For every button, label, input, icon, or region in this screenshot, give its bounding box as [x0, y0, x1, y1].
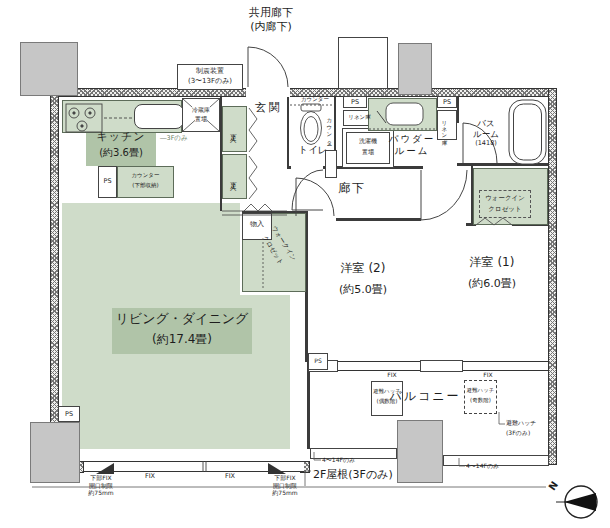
fix-label-living-2: FIX [220, 472, 240, 480]
shoe-cabinet-label-1: 下足入 [229, 112, 237, 148]
entry-door-arc [248, 47, 288, 87]
fix-label-room2: FIX [382, 371, 402, 379]
powder-room-label: パウダールーム [383, 133, 441, 157]
kitchen-name: キッチン [86, 130, 156, 144]
compass-icon [556, 486, 597, 518]
room2-size: (約5.0畳) [323, 283, 403, 297]
fix-label-room1: FIX [478, 371, 498, 379]
floors-note-2: 4〜14Fのみ [466, 462, 510, 470]
linen-label-v: リネン庫 [441, 113, 448, 139]
toilet-label: トイレ [294, 144, 332, 156]
column-top-mid [398, 43, 432, 95]
ps-label-powder: PS [437, 98, 457, 106]
common-corridor-label: 共用廊下(内廊下) [232, 6, 310, 34]
ps-label-kitchen: PS [98, 177, 117, 185]
kitchen-3f-note: ―3Fのみ [160, 134, 202, 142]
bath-room-label: バスルーム (1418) [466, 118, 506, 147]
wall-powder-bath [457, 97, 459, 123]
wic-room1-label: ウォークインクロゼット [479, 193, 531, 215]
living-dining-size: (約17.4畳) [112, 332, 252, 347]
refrigerator-label: 冷蔵庫 置場 [182, 105, 220, 123]
kitchen-sink [134, 104, 184, 129]
seismic-device-label: 制震装置(3〜13Fのみ) [178, 67, 242, 87]
room1-door-arc [421, 170, 467, 220]
toilet-counter-label: カウンター [294, 96, 336, 103]
floors-note-1: 4〜14Fのみ [322, 456, 366, 464]
bathtub-icon [509, 100, 546, 164]
wall-right [548, 88, 557, 465]
hatch-3f-note: 避難ハッチ(3Fのみ) [506, 418, 556, 437]
room1-name: 洋室 (1) [452, 255, 532, 270]
wall-toilet-bottom-a [287, 166, 291, 169]
ps-label-room2: PS [308, 357, 328, 365]
vanity-counter [368, 98, 437, 131]
room2-name: 洋室 (2) [323, 261, 403, 276]
entrance-label: 玄関 [248, 101, 290, 115]
kitchen-size: (約3.6畳) [86, 147, 156, 160]
column-top-left [20, 42, 78, 96]
linen-label-h: リネン庫 [343, 114, 376, 121]
ps-label-left: PS [58, 410, 80, 418]
lower-fix-note-1: 下部FIX開口制限約75mm [78, 474, 124, 497]
living-dining-name: リビング・ダイニング [112, 311, 252, 327]
fix-label-living-1: FIX [140, 472, 160, 480]
entry-opening [246, 88, 290, 97]
room1-size: (約6.0畳) [452, 277, 532, 291]
floor-plan: 共用廊下(内廊下) 制震装置(3〜13Fのみ) キッチン (約3.6畳) ―3F… [0, 0, 610, 528]
roof-2f-label: 2F屋根(3Fのみ) [313, 468, 413, 482]
corridor-label: 廊下 [332, 181, 372, 196]
hatch-odd-label: 避難ハッチ(奇数階) [464, 385, 497, 406]
hatch-even-label: 避難ハッチ(偶数階) [371, 386, 403, 407]
lower-fix-note-2: 下部FIX開口制限約75mm [262, 474, 308, 497]
ps-label-toilet: PS [343, 98, 367, 106]
counter-storage-label: カウンター(下部収納) [117, 171, 174, 191]
wall-block-between-windows [420, 360, 463, 372]
window-room1 [463, 361, 548, 371]
wall-balcony-left [307, 362, 310, 449]
wall-room2-top [336, 218, 421, 221]
column-bottom-left [30, 422, 80, 483]
shoe-cabinet-label-2: 下足入 [229, 160, 237, 196]
compass-north-label: N [544, 476, 563, 496]
toilet-door-arc [292, 170, 323, 210]
window-living [84, 461, 304, 472]
shaft-box [338, 37, 388, 89]
window-room2 [338, 361, 420, 371]
